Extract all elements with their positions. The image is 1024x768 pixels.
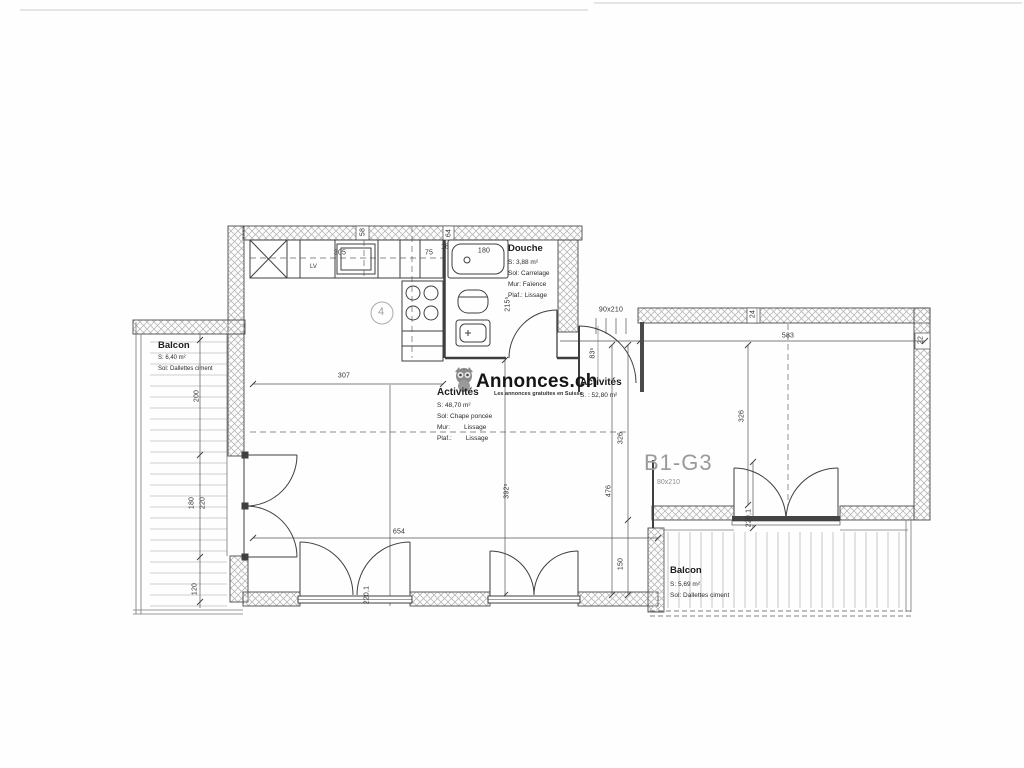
toilet bbox=[458, 290, 488, 313]
room-title: Balcon bbox=[158, 340, 213, 351]
room-plaf: Plaf.: Lissage bbox=[508, 290, 550, 301]
floor-plan-page: Annonces.ch Les annonces gratuites en Su… bbox=[0, 0, 1024, 768]
room-plaf: Plaf.:Lissage bbox=[437, 433, 492, 444]
dishwasher-label: LV bbox=[310, 264, 317, 270]
room-sol: Sol: Carrelage bbox=[508, 268, 550, 279]
room-area: S. : 52,80 m² bbox=[580, 390, 622, 401]
unit-label: B1-G3 bbox=[644, 450, 713, 476]
room-mur: Mur: Faïence bbox=[508, 279, 550, 290]
washbasin bbox=[456, 320, 490, 346]
room-sol: Sol: Chape poncée bbox=[437, 411, 492, 422]
grid-marker-label: 4 bbox=[378, 306, 384, 318]
room-block-balcon-ouest: Balcon S: 6,40 m² Sol: Dallettes ciment bbox=[158, 340, 213, 375]
entry-opening-marks bbox=[596, 318, 626, 334]
room-block-activites-est: Activités S. : 52,80 m² bbox=[580, 377, 622, 401]
room-area: S: 5,69 m² bbox=[670, 579, 729, 590]
kitchen-counter bbox=[250, 240, 443, 278]
unit-door-size: 80x210 bbox=[657, 479, 680, 486]
doors bbox=[242, 310, 840, 603]
room-mur: Mur:Lissage bbox=[437, 422, 492, 433]
room-title: Balcon bbox=[670, 565, 729, 576]
watermark-tagline: Les annonces gratuites en Suisse bbox=[494, 391, 583, 397]
room-sol: Sol: Dallettes ciment bbox=[670, 590, 729, 601]
room-block-douche: Douche S: 3,88 m² Sol: Carrelage Mur: Fa… bbox=[508, 243, 550, 301]
room-block-balcon-sud: Balcon S: 5,69 m² Sol: Dallettes ciment bbox=[670, 565, 729, 601]
room-title: Douche bbox=[508, 243, 550, 254]
dimension-lines bbox=[200, 308, 925, 608]
stove bbox=[402, 281, 443, 361]
room-sol: Sol: Dallettes ciment bbox=[158, 364, 213, 375]
room-title: Activités bbox=[580, 377, 622, 388]
room-area: S: 6,40 m² bbox=[158, 353, 213, 364]
bathtub bbox=[448, 240, 508, 278]
balcony-west-decking bbox=[150, 342, 227, 606]
room-title: Activités bbox=[437, 387, 492, 398]
room-area: S: 3,88 m² bbox=[508, 257, 550, 268]
room-area: S: 48,70 m² bbox=[437, 400, 492, 411]
scan-artifact-lines bbox=[20, 3, 1022, 10]
room-block-activites: Activités S: 48,70 m² Sol: Chape poncée … bbox=[437, 387, 492, 444]
